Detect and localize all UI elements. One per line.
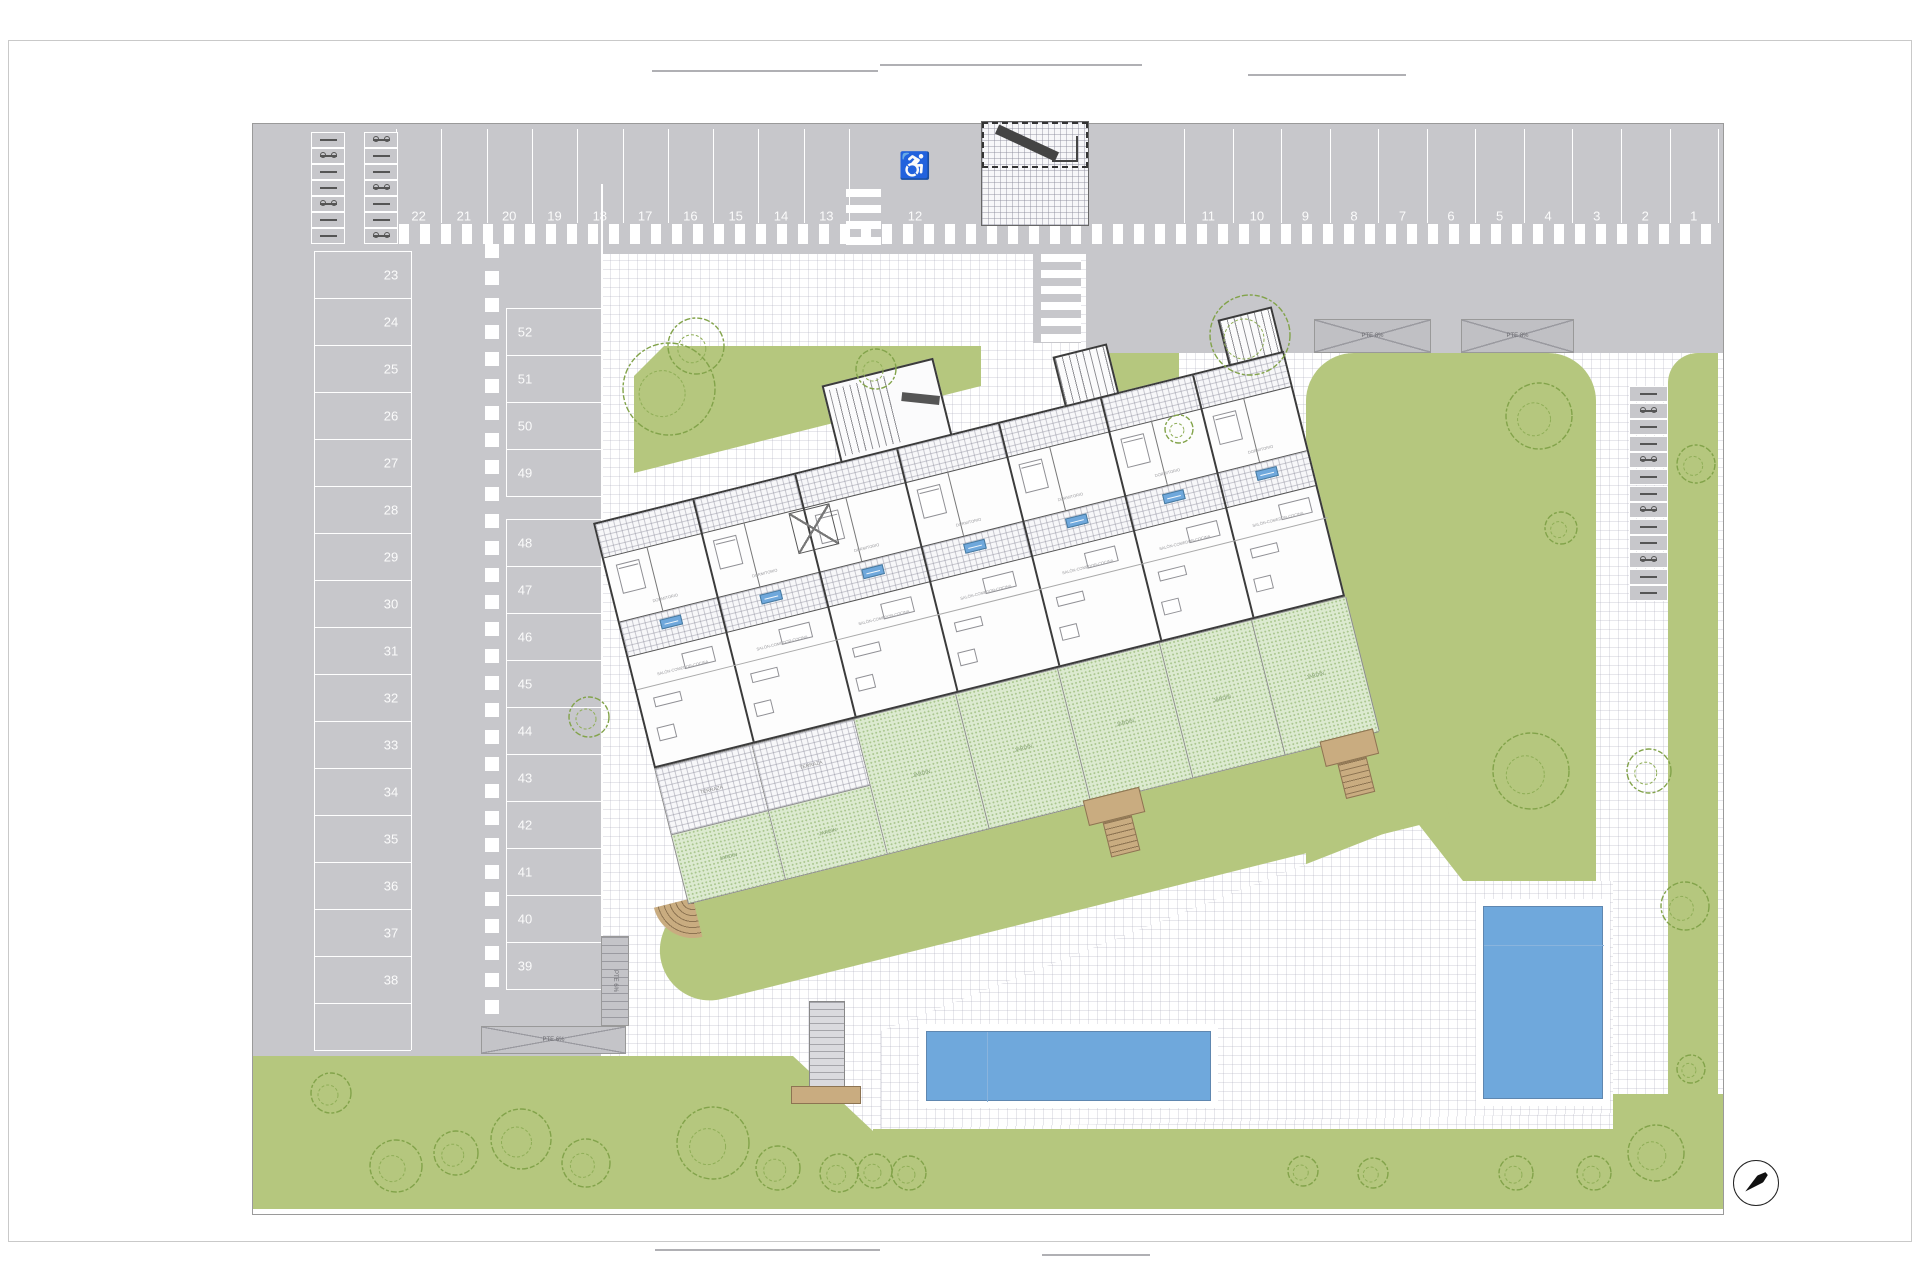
crosswalk-vertical-2	[1041, 254, 1081, 342]
stall-divider	[314, 721, 411, 722]
parking-space-number: 34	[384, 784, 398, 799]
stall-divider	[506, 989, 601, 990]
parking-space-number: 31	[384, 643, 398, 658]
parking-space-number: 43	[518, 770, 532, 785]
garden-label: JARDÍN	[1213, 694, 1232, 704]
stall-divider	[804, 129, 805, 223]
ramp-label: PTE 8%	[1361, 333, 1383, 339]
garden-label: JARDÍN	[1014, 743, 1033, 753]
stair-rail	[1052, 136, 1078, 162]
stall-divider	[506, 308, 601, 309]
road-edge-line	[880, 64, 1142, 66]
parking-space-number: 12	[908, 209, 922, 224]
bike-racks	[1629, 386, 1669, 606]
moto-icon	[320, 139, 337, 141]
stall-divider	[1718, 129, 1719, 223]
swimming-pool-right	[1483, 906, 1603, 1099]
ramp-right-b: PTE 8%	[1461, 319, 1574, 353]
stall-divider	[314, 1003, 411, 1004]
stall-divider	[411, 251, 412, 1050]
parking-space-number: 27	[384, 455, 398, 470]
moto-icon	[373, 235, 390, 237]
stall-divider	[506, 848, 601, 849]
stall-divider	[314, 862, 411, 863]
parking-space-number: 2	[1642, 209, 1649, 224]
parking-columns-left: 2324252627282930313233343536373852515049…	[253, 124, 653, 1124]
wheelchair-icon: ♿	[899, 151, 931, 182]
stall-divider	[506, 519, 507, 989]
stall-divider	[314, 1050, 411, 1051]
bath-icon	[957, 648, 978, 666]
garden-label: JARDÍN	[912, 769, 931, 779]
ramp-right-a: PTE 8%	[1314, 319, 1431, 353]
bath-icon	[855, 674, 876, 692]
parking-space-number: 37	[384, 925, 398, 940]
stall-divider	[758, 129, 759, 223]
sofa-icon	[1250, 542, 1280, 558]
bike-icon	[1640, 509, 1657, 511]
parking-space-number: 50	[518, 418, 532, 433]
bike-icon	[1640, 426, 1657, 428]
moto-slot	[364, 196, 398, 212]
north-compass	[1733, 1160, 1779, 1206]
moto-icon	[373, 219, 390, 221]
parking-space-number: 35	[384, 831, 398, 846]
bike-rack-slot	[1629, 436, 1668, 452]
moto-icon	[320, 219, 337, 221]
stall-divider	[314, 768, 411, 769]
parking-space-number: 51	[518, 371, 532, 386]
moto-slot	[364, 212, 398, 228]
road-edge-line	[655, 1249, 880, 1251]
stall-divider	[506, 754, 601, 755]
moto-slot	[364, 164, 398, 180]
bike-icon	[1640, 410, 1657, 412]
bike-rack-slot	[1629, 502, 1668, 518]
stall-divider	[314, 580, 411, 581]
stall-divider	[314, 533, 411, 534]
crosswalk-vertical-1	[846, 189, 881, 251]
moto-slot	[311, 164, 345, 180]
parking-space-number: 38	[384, 972, 398, 987]
parking-space-number: 5	[1496, 209, 1503, 224]
stall-divider	[314, 956, 411, 957]
stall-divider	[314, 815, 411, 816]
garden-label: JARDÍN	[1306, 671, 1325, 681]
stall-divider	[314, 674, 411, 675]
bike-rack-slot	[1629, 469, 1668, 485]
stall-divider	[506, 613, 601, 614]
storage-slots	[829, 375, 906, 456]
compass-needle-icon	[1742, 1170, 1769, 1195]
site-plan: 2221201918171615141312♿1110987654321 232…	[252, 123, 1724, 1215]
parking-space-number: 24	[384, 314, 398, 329]
bath-icon	[1161, 598, 1182, 616]
moto-slot	[364, 148, 398, 164]
parking-space-number: 26	[384, 408, 398, 423]
sofa-icon	[1056, 590, 1086, 606]
moto-slot	[311, 180, 345, 196]
garden-label: JARDÍN	[818, 827, 837, 837]
moto-icon	[373, 139, 390, 141]
stall-divider	[506, 801, 601, 802]
stall-divider	[506, 566, 601, 567]
parking-space-number: 9	[1302, 209, 1309, 224]
bike-rack-slot	[1629, 535, 1668, 551]
moto-icon	[320, 155, 337, 157]
stall-divider	[314, 298, 411, 299]
stall-divider	[1475, 129, 1476, 223]
road-edge-line	[652, 70, 878, 72]
parking-space-number: 45	[518, 676, 532, 691]
parking-space-number: 33	[384, 737, 398, 752]
stall-divider	[314, 909, 411, 910]
parking-space-number: 39	[518, 958, 532, 973]
parking-space-number: 16	[683, 209, 697, 224]
sofa-icon	[653, 691, 683, 707]
bath-icon	[753, 699, 774, 717]
stall-divider	[1670, 129, 1671, 223]
parking-space-number: 46	[518, 629, 532, 644]
room-label-bedroom: DORMITORIO	[652, 592, 678, 603]
room-label-bedroom: DORMITORIO	[1154, 467, 1180, 478]
sofa-icon	[750, 667, 780, 683]
road-edge-line	[1042, 1254, 1150, 1256]
parking-space-number: 13	[819, 209, 833, 224]
entrance-stair-structure	[981, 121, 1089, 226]
parking-space-number: 8	[1350, 209, 1357, 224]
bike-icon	[1640, 493, 1657, 495]
moto-icon	[320, 187, 337, 189]
stall-divider	[314, 486, 411, 487]
stall-divider	[506, 895, 601, 896]
bike-icon	[1640, 393, 1657, 395]
sofa-icon	[1158, 565, 1188, 581]
parking-space-number: 14	[774, 209, 788, 224]
ramp-label: PTE 8%	[1506, 333, 1528, 339]
parking-space-number: 41	[518, 864, 532, 879]
parking-space-number: 15	[728, 209, 742, 224]
stall-divider	[314, 439, 411, 440]
parking-space-number: 11	[1202, 209, 1216, 224]
stall-divider	[1184, 129, 1185, 223]
parking-space-number: 10	[1250, 209, 1264, 224]
stall-divider	[713, 129, 714, 223]
stall-divider	[506, 355, 601, 356]
moto-icon	[373, 155, 390, 157]
road-edge-line	[1248, 74, 1406, 76]
parking-space-number: 3	[1593, 209, 1600, 224]
lawn-right-strip	[1668, 353, 1718, 1133]
bike-icon	[1640, 576, 1657, 578]
bike-icon	[1640, 459, 1657, 461]
parking-space-number: 42	[518, 817, 532, 832]
bath-icon	[1253, 575, 1274, 593]
moto-slot	[311, 148, 345, 164]
ramp-left-vertical: PTE 6%	[601, 936, 629, 1026]
stall-divider	[506, 449, 601, 450]
parking-space-number: 40	[518, 911, 532, 926]
parking-space-number: 29	[384, 549, 398, 564]
bike-icon	[1640, 592, 1657, 594]
parking-space-number: 47	[518, 582, 532, 597]
moto-slot	[364, 228, 398, 244]
pool-lane-line	[1484, 945, 1604, 946]
crosswalk-horizontal	[399, 224, 1719, 244]
stall-divider	[506, 308, 507, 496]
bike-rack-slot	[1629, 569, 1668, 585]
parking-space-number: 52	[518, 324, 532, 339]
bike-icon	[1640, 526, 1657, 528]
stall-divider	[1281, 129, 1282, 223]
ramp-label: PTE 6%	[612, 970, 618, 992]
stall-divider	[506, 942, 601, 943]
bike-rack-slot	[1629, 386, 1668, 402]
bike-icon	[1640, 476, 1657, 478]
lane-dashed-line	[485, 244, 499, 1014]
garden-label: JARDÍN	[719, 852, 738, 862]
moto-slot	[311, 228, 345, 244]
room-label-bedroom: DORMITORIO	[1247, 444, 1273, 455]
sofa-icon	[852, 641, 882, 657]
bike-rack-slot	[1629, 552, 1668, 568]
bike-icon	[1640, 542, 1657, 544]
moto-icon	[320, 235, 337, 237]
stall-divider	[1572, 129, 1573, 223]
parking-space-number: 48	[518, 535, 532, 550]
stall-divider	[1378, 129, 1379, 223]
parking-space-number: 7	[1399, 209, 1406, 224]
moto-icon	[320, 171, 337, 173]
stall-divider	[506, 519, 601, 520]
parking-space-number: 49	[518, 465, 532, 480]
stall-divider	[506, 707, 601, 708]
stall-divider	[506, 402, 601, 403]
moto-icon	[320, 203, 337, 205]
bath-icon	[1059, 623, 1080, 641]
parking-space-number: 4	[1545, 209, 1552, 224]
parking-space-number: 28	[384, 502, 398, 517]
lawn-bottom-band	[873, 1129, 1723, 1209]
moto-icon	[373, 203, 390, 205]
bike-rack-slot	[1629, 452, 1668, 468]
bike-rack-slot	[1629, 585, 1668, 601]
bike-rack-slot	[1629, 519, 1668, 535]
bike-rack-slot	[1629, 419, 1668, 435]
stair-flight	[901, 392, 940, 405]
moto-slot	[364, 132, 398, 148]
moto-slot	[311, 132, 345, 148]
ramp-label: PTE 6%	[542, 1037, 564, 1043]
sofa-icon	[954, 616, 984, 632]
parking-space-number: 44	[518, 723, 532, 738]
bike-rack-slot	[1629, 486, 1668, 502]
parking-space-number: 32	[384, 690, 398, 705]
moto-slot	[311, 196, 345, 212]
stall-divider	[668, 129, 669, 223]
stall-divider	[1330, 129, 1331, 223]
ramp-landing-pad	[791, 1086, 861, 1104]
stall-divider	[314, 392, 411, 393]
ramp-to-pool-deck	[809, 1001, 845, 1089]
terrace-label: TERRAZA	[799, 760, 823, 771]
moto-slot	[364, 180, 398, 196]
garden-label: JARDÍN	[1116, 718, 1135, 728]
moto-icon	[373, 171, 390, 173]
stall-divider	[1621, 129, 1622, 223]
stall-divider	[506, 496, 601, 497]
bike-icon	[1640, 443, 1657, 445]
stall-divider	[506, 660, 601, 661]
stall-divider	[1524, 129, 1525, 223]
swimming-pool-left	[926, 1031, 1211, 1101]
parking-space-number: 23	[384, 267, 398, 282]
stall-divider	[314, 251, 315, 1050]
stall-divider	[1233, 129, 1234, 223]
moto-slot	[311, 212, 345, 228]
parking-space-number: 1	[1690, 209, 1697, 224]
pool-lane-line	[987, 1032, 988, 1102]
bike-icon	[1640, 559, 1657, 561]
bath-icon	[656, 723, 677, 741]
ramp-left-horizontal: PTE 6%	[481, 1026, 626, 1054]
parking-space-number: 25	[384, 361, 398, 376]
parking-space-number: 30	[384, 596, 398, 611]
parking-space-number: 6	[1447, 209, 1454, 224]
parking-space-number: 36	[384, 878, 398, 893]
stall-divider	[314, 345, 411, 346]
terrace-label: TERRAZA	[700, 784, 724, 795]
stall-divider	[314, 627, 411, 628]
moto-icon	[373, 187, 390, 189]
stall-divider	[1427, 129, 1428, 223]
bike-rack-slot	[1629, 403, 1668, 419]
